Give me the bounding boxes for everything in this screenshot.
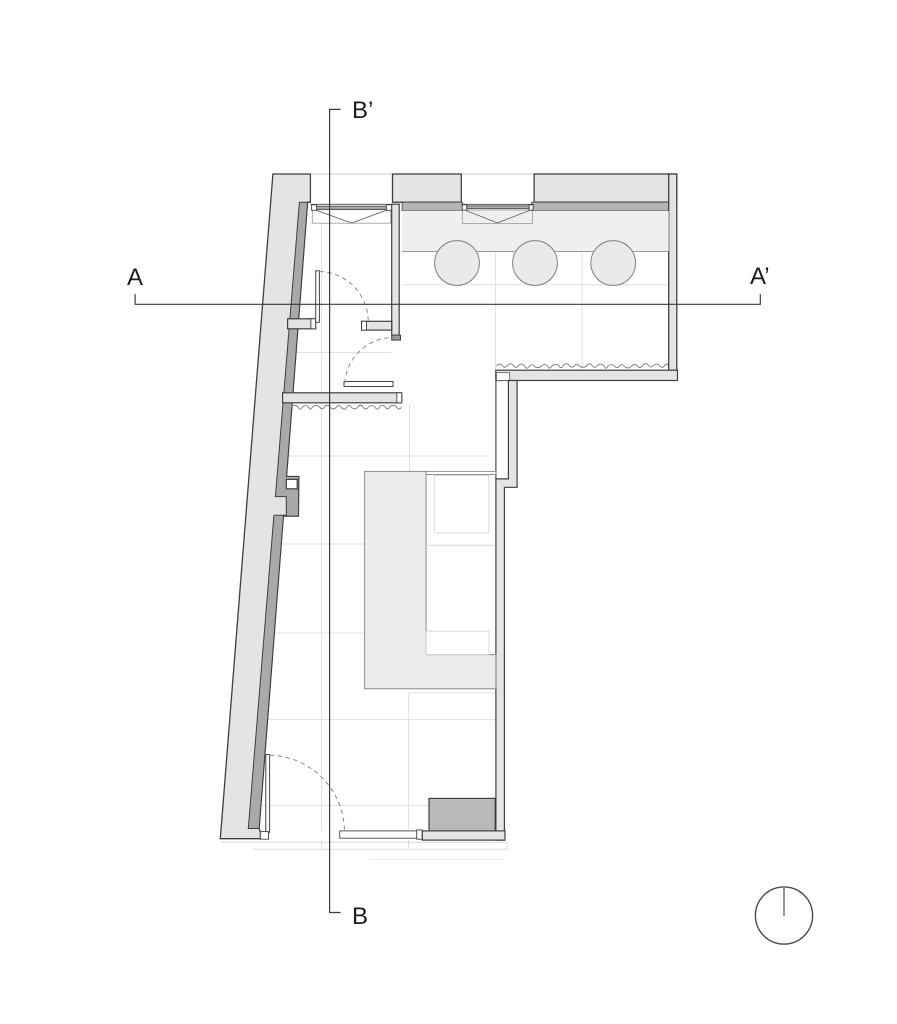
svg-text:A’: A’ — [750, 263, 770, 290]
svg-text:A: A — [127, 264, 143, 291]
svg-text:B: B — [352, 903, 368, 930]
svg-text:B’: B’ — [352, 97, 373, 124]
